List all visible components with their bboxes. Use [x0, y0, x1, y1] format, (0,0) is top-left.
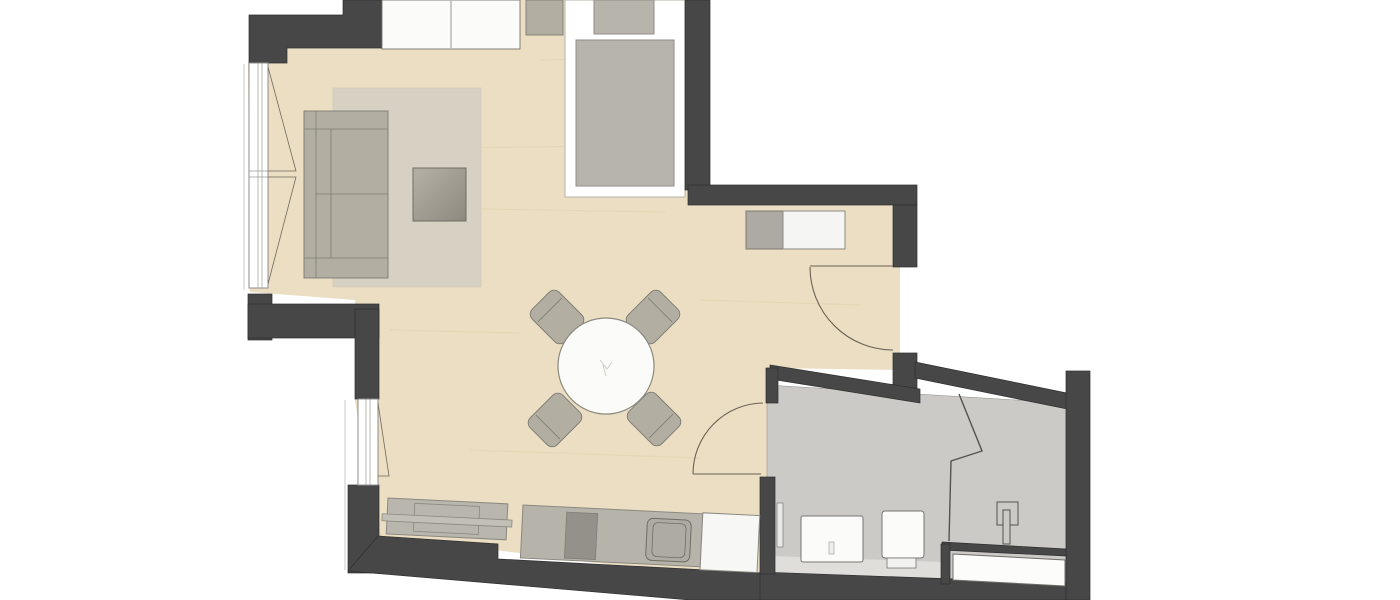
double-bed [382, 0, 520, 49]
alcove-mat [576, 40, 674, 186]
nightstand [526, 0, 563, 35]
floor-plan-svg [0, 0, 1400, 600]
sofa [304, 111, 388, 278]
refrigerator [700, 513, 760, 573]
alcove-niche [565, 0, 685, 197]
wall-left-lower [355, 309, 379, 399]
coffee-table [413, 168, 466, 221]
wall-entry-stub-lower [893, 353, 917, 388]
wall-bathroom-west-lower [760, 477, 775, 574]
cooktop [564, 512, 597, 559]
dining-table [558, 318, 654, 414]
alcove-cabinet [594, 0, 654, 34]
wall-entry-stub-upper [893, 205, 917, 267]
wall-top-right [688, 185, 917, 205]
wall-bathroom-west-upper [766, 368, 778, 403]
bathtub [953, 554, 1065, 586]
kitchen-sink [645, 518, 691, 562]
washbasin [801, 516, 863, 562]
towel-radiator [777, 503, 783, 547]
wall-tub-stub [941, 544, 950, 584]
wall-bathroom-east [1066, 371, 1090, 600]
sideboard [746, 211, 845, 249]
floor-plan-canvas [0, 0, 1400, 600]
wall-alcove-east [685, 0, 710, 190]
tv-lowboard [381, 498, 513, 540]
